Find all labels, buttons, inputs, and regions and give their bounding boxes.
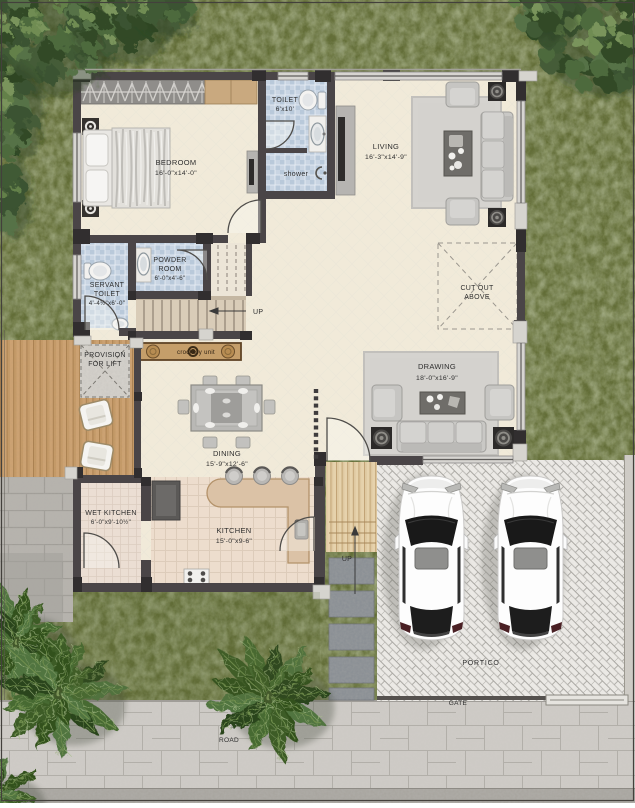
svg-text:15'-0"x9-6": 15'-0"x9-6" bbox=[216, 538, 253, 545]
svg-text:16'-0"x14'-0": 16'-0"x14'-0" bbox=[155, 170, 197, 177]
svg-text:DRAWING: DRAWING bbox=[418, 362, 456, 371]
svg-text:KITCHEN: KITCHEN bbox=[216, 526, 251, 535]
svg-text:shower: shower bbox=[284, 171, 309, 178]
svg-text:16'-3"x14'-9": 16'-3"x14'-9" bbox=[365, 154, 407, 161]
svg-text:ROAD: ROAD bbox=[219, 737, 239, 744]
svg-text:crockery unit: crockery unit bbox=[177, 350, 215, 356]
svg-text:6'-0"x4'-6": 6'-0"x4'-6" bbox=[154, 275, 185, 282]
svg-text:ABOVE: ABOVE bbox=[464, 294, 490, 301]
svg-text:18'-0"x16'-9": 18'-0"x16'-9" bbox=[416, 375, 458, 382]
svg-text:CUT OUT: CUT OUT bbox=[460, 285, 494, 292]
svg-text:PROVISION: PROVISION bbox=[84, 352, 126, 359]
svg-text:TOILET: TOILET bbox=[272, 97, 299, 104]
svg-text:BEDROOM: BEDROOM bbox=[156, 158, 197, 167]
svg-text:SERVANT: SERVANT bbox=[90, 282, 125, 289]
svg-text:POWDER: POWDER bbox=[153, 257, 186, 264]
svg-text:UP: UP bbox=[253, 309, 263, 316]
svg-text:ROOM: ROOM bbox=[159, 266, 182, 273]
svg-text:PORTICO: PORTICO bbox=[462, 660, 499, 667]
svg-text:15'-9"x12'-6": 15'-9"x12'-6" bbox=[206, 461, 248, 468]
svg-text:6'-0"x9'-10½": 6'-0"x9'-10½" bbox=[91, 519, 131, 526]
svg-text:DINING: DINING bbox=[213, 449, 241, 458]
svg-text:GATE: GATE bbox=[449, 700, 468, 707]
svg-text:WET KITCHEN: WET KITCHEN bbox=[85, 510, 136, 517]
svg-text:FOR LIFT: FOR LIFT bbox=[88, 361, 122, 368]
svg-text:TOILET: TOILET bbox=[94, 291, 121, 298]
svg-text:LIVING: LIVING bbox=[373, 142, 399, 151]
svg-text:UP: UP bbox=[342, 556, 352, 563]
svg-text:6'x10': 6'x10' bbox=[276, 106, 294, 113]
svg-text:4'-4½"x6'-0": 4'-4½"x6'-0" bbox=[89, 300, 126, 307]
